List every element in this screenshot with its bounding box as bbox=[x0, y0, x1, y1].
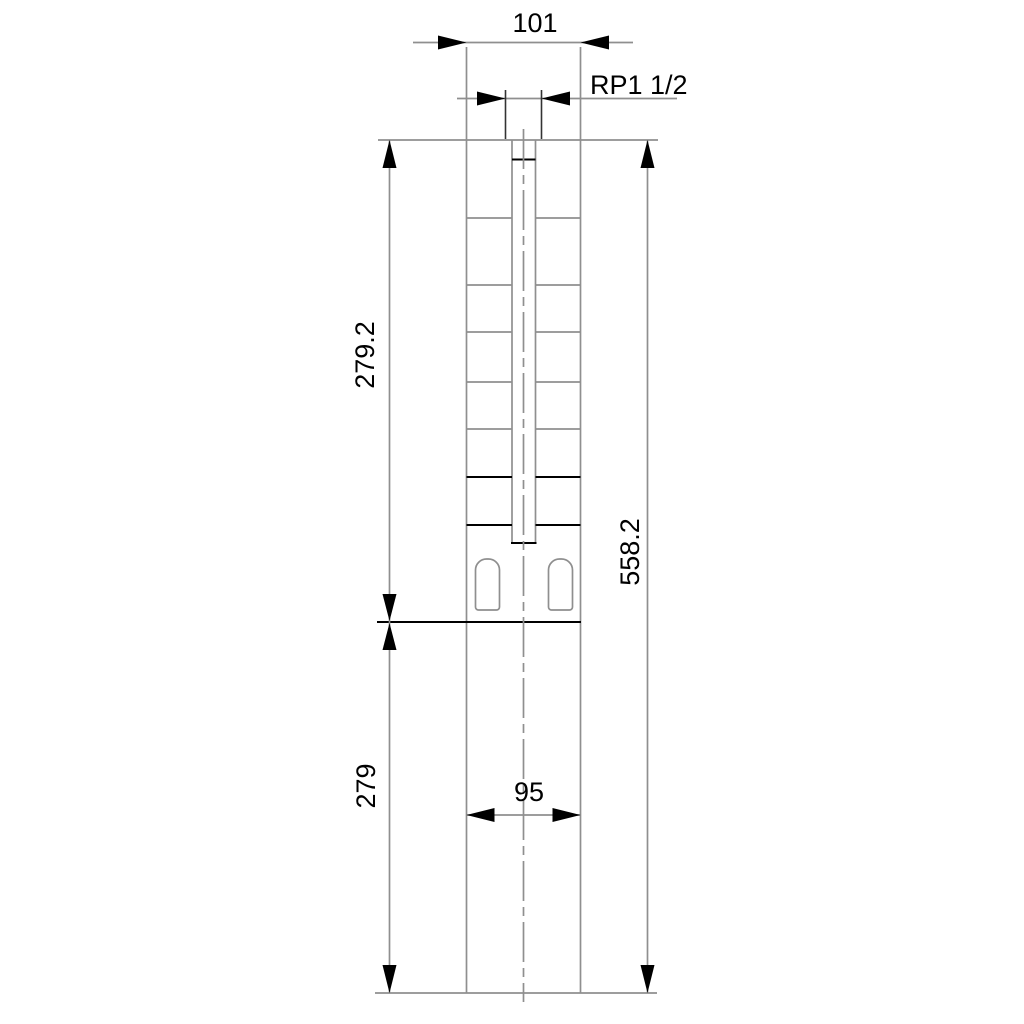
dim-label-pump-section-height: 279.2 bbox=[350, 321, 380, 389]
arrowhead-left-junction-down bbox=[383, 594, 397, 621]
arrowhead-motor-width-left bbox=[467, 808, 495, 822]
arrowhead-top-width-right bbox=[581, 36, 610, 50]
arrowhead-thread-left bbox=[477, 92, 506, 106]
arrowhead-right-bottom-down bbox=[641, 965, 655, 993]
technical-drawing-canvas: 101 RP1 1/2 279.2 558.2 279 95 bbox=[0, 0, 1024, 1024]
inlet-slot-left bbox=[476, 559, 500, 610]
arrowhead-thread-right bbox=[542, 92, 571, 106]
dim-label-total-height: 558.2 bbox=[615, 518, 645, 586]
pump-dimension-drawing: 101 RP1 1/2 279.2 558.2 279 95 bbox=[0, 0, 1024, 1024]
dim-label-motor-section-height: 279 bbox=[351, 763, 381, 808]
pump-internal-details bbox=[377, 160, 581, 623]
thread-size-label: RP1 1/2 bbox=[590, 70, 688, 100]
dimension-labels: 101 RP1 1/2 279.2 558.2 279 95 bbox=[350, 8, 688, 809]
arrowhead-right-top-up bbox=[641, 140, 655, 168]
dim-label-top-width: 101 bbox=[512, 8, 557, 38]
dimension-lines bbox=[390, 43, 678, 994]
arrowhead-left-top-up bbox=[383, 140, 397, 168]
arrowhead-motor-width-right bbox=[553, 808, 581, 822]
arrowhead-left-bottom-down bbox=[383, 965, 397, 993]
inlet-slot-right bbox=[549, 559, 573, 610]
arrowhead-top-width-left bbox=[438, 36, 467, 50]
arrowhead-left-junction-up bbox=[383, 623, 397, 650]
arrowheads bbox=[383, 36, 655, 994]
dim-label-motor-width: 95 bbox=[514, 777, 544, 807]
